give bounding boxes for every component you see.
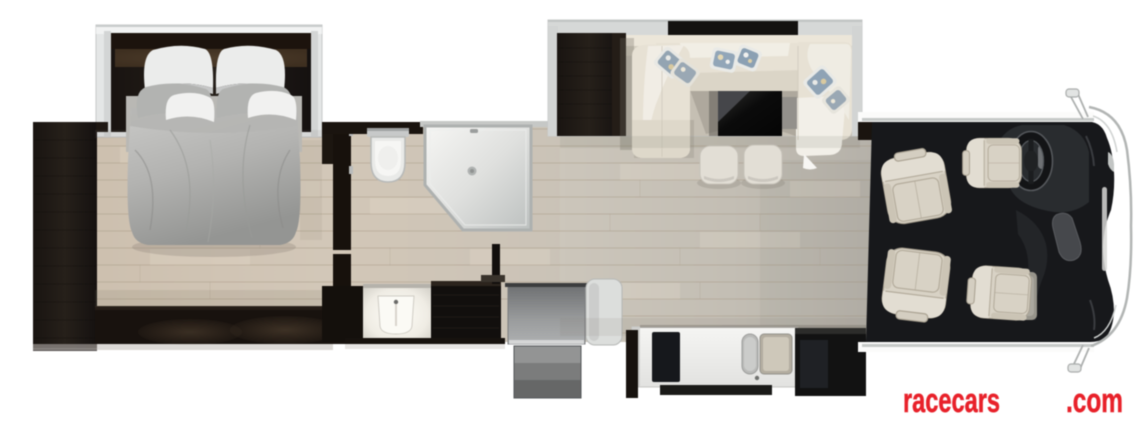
svg-text:racecars: racecars [903, 382, 1000, 420]
svg-text:.com: .com [1066, 382, 1123, 420]
